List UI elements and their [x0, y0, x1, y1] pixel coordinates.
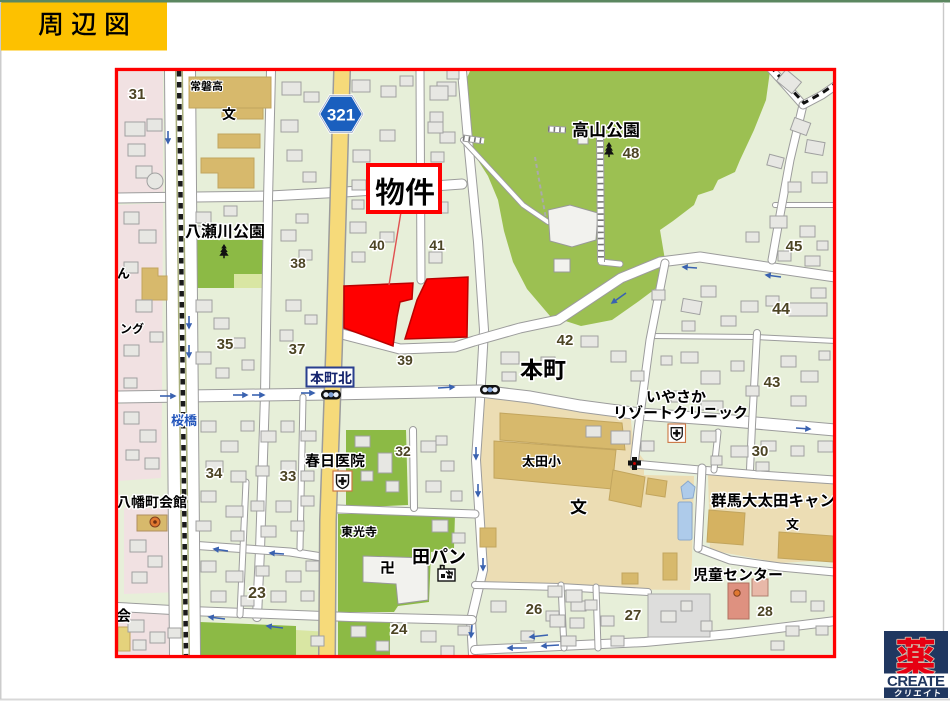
svg-text:CREATE: CREATE: [887, 673, 945, 690]
svg-text:44: 44: [772, 301, 790, 318]
svg-text:45: 45: [786, 238, 803, 255]
svg-text:34: 34: [206, 465, 223, 482]
svg-text:23: 23: [248, 585, 266, 602]
svg-text:321: 321: [327, 106, 355, 125]
svg-text:27: 27: [625, 607, 642, 624]
svg-text:32: 32: [395, 443, 411, 459]
svg-text:26: 26: [526, 601, 543, 618]
svg-text:31: 31: [129, 86, 146, 103]
svg-text:48: 48: [623, 145, 640, 162]
svg-text:38: 38: [290, 255, 306, 271]
svg-text:24: 24: [391, 621, 408, 638]
svg-text:42: 42: [557, 332, 574, 349]
svg-text:39: 39: [397, 352, 413, 368]
svg-text:35: 35: [217, 336, 234, 353]
svg-text:37: 37: [289, 341, 306, 358]
svg-text:40: 40: [369, 237, 385, 253]
svg-text:30: 30: [752, 443, 769, 460]
svg-text:28: 28: [757, 603, 773, 619]
svg-text:43: 43: [764, 374, 781, 391]
svg-text:33: 33: [280, 468, 297, 485]
svg-text:41: 41: [429, 237, 445, 253]
